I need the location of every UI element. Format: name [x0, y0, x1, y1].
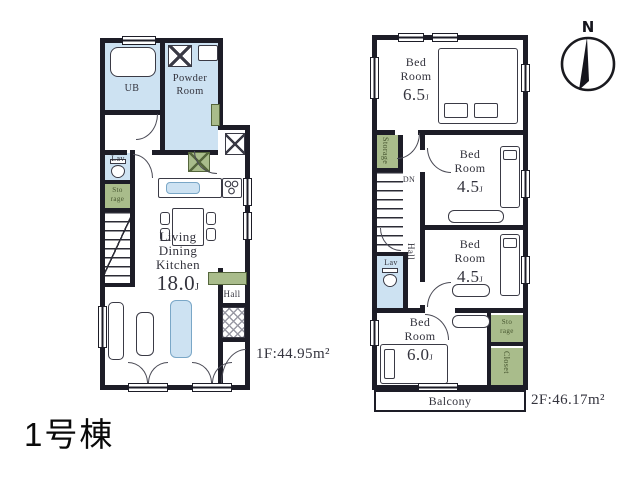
storage-label-1f-2: rage — [105, 196, 130, 203]
dining-chair — [206, 212, 216, 225]
ldk-size-unit: J — [195, 282, 199, 293]
bedroom-mid1-label-1: Bed — [432, 148, 508, 160]
window — [398, 33, 424, 42]
room-label-hall-1f: Hall — [219, 290, 245, 299]
compass: N — [548, 10, 628, 98]
window — [370, 320, 379, 346]
kitchen-sink — [166, 182, 200, 194]
wall — [420, 135, 425, 150]
bedroom-mid2-size: 4.5J — [432, 268, 508, 285]
stairs-1f — [105, 212, 130, 283]
wall — [105, 180, 130, 184]
stove — [222, 178, 242, 198]
bedroom-mid1-label-2: Room — [432, 162, 508, 174]
storage-label-1f-1: Sto — [105, 187, 130, 194]
terrace-door — [128, 383, 168, 392]
pillow — [474, 103, 498, 118]
pillow — [444, 103, 468, 118]
toilet-icon — [382, 268, 398, 273]
area-label-2f: 2F:46.17m² — [531, 393, 605, 408]
size-unit: J — [429, 353, 433, 362]
room-size-ldk: 18.0J — [138, 273, 218, 294]
window — [243, 212, 252, 240]
desk — [448, 210, 504, 223]
entrance-cabinet — [222, 307, 245, 338]
storage-left-label: Storage — [381, 137, 389, 167]
tv-board — [170, 300, 192, 358]
size-value: 4.5 — [457, 267, 479, 286]
wall — [425, 225, 528, 230]
size-unit: J — [479, 275, 483, 284]
room-label-ldk-1: Living — [138, 230, 218, 243]
ldk-size-value: 18.0 — [157, 271, 195, 295]
bathtub — [110, 47, 156, 77]
refrigerator-space — [225, 133, 245, 155]
window — [521, 256, 530, 284]
wall — [377, 168, 403, 172]
area-label-1f: 1F:44.95m² — [256, 347, 330, 362]
wall — [377, 130, 395, 135]
washbasin — [198, 45, 218, 61]
bedroom-mid1-size: 4.5J — [432, 178, 508, 195]
floorplan-page: UB Powder Room Lav Sto rage Living Dinin… — [0, 0, 640, 480]
window — [521, 170, 530, 198]
compass-north-label: N — [582, 18, 595, 36]
building-caption: 1号棟 — [24, 418, 114, 451]
wall — [105, 283, 130, 287]
window — [98, 306, 107, 348]
low-table — [136, 312, 154, 356]
window — [243, 178, 252, 206]
closet-label: Closet — [502, 351, 510, 384]
window — [521, 64, 530, 92]
room-label-powder-1: Powder — [164, 74, 216, 85]
window — [370, 57, 379, 99]
size-value: 6.0 — [407, 345, 429, 364]
size-unit: J — [425, 93, 429, 102]
desk — [452, 315, 490, 328]
room-label-lav-1f: Lav — [106, 155, 130, 163]
storage-right-label-1: Sto — [491, 319, 523, 326]
dn-label: DN — [399, 176, 419, 184]
wall-cabinet — [211, 104, 220, 126]
sofa — [108, 302, 124, 360]
wall — [487, 342, 528, 346]
wall — [418, 130, 528, 135]
wall — [455, 308, 528, 313]
window — [122, 36, 156, 45]
size-value: 6.5 — [403, 85, 425, 104]
bedroom-top-label-2: Room — [380, 70, 452, 82]
wall — [160, 43, 165, 152]
washing-machine — [168, 45, 192, 67]
terrace-door — [192, 383, 232, 392]
room-label-ldk-3: Kitchen — [138, 258, 218, 271]
bedroom-bottom-size: 6.0J — [384, 346, 456, 363]
lav-label-2f: Lav — [379, 259, 403, 267]
hall-label-2f: Hall — [406, 243, 415, 289]
compass-needle-icon — [579, 37, 589, 90]
bedroom-bottom-label-2: Room — [384, 330, 456, 342]
wall — [377, 308, 425, 313]
bedroom-top-size: 6.5J — [380, 86, 452, 103]
size-unit: J — [479, 185, 483, 194]
room-label-ldk-2: Dining — [138, 244, 218, 257]
bedroom-top-label-1: Bed — [380, 56, 452, 68]
room-label-ub: UB — [112, 84, 152, 94]
balcony-label: Balcony — [400, 395, 500, 407]
bedroom-mid2-label-2: Room — [432, 252, 508, 264]
storage-right-label-2: rage — [491, 328, 523, 335]
room-label-powder-2: Room — [164, 87, 216, 98]
dining-chair — [160, 212, 170, 225]
bedroom-mid2-label-1: Bed — [432, 238, 508, 250]
stove-burners-icon — [223, 179, 240, 196]
wall — [218, 338, 245, 342]
window — [432, 33, 458, 42]
size-value: 4.5 — [457, 177, 479, 196]
wall — [105, 208, 130, 212]
bedroom-bottom-label-1: Bed — [384, 316, 456, 328]
